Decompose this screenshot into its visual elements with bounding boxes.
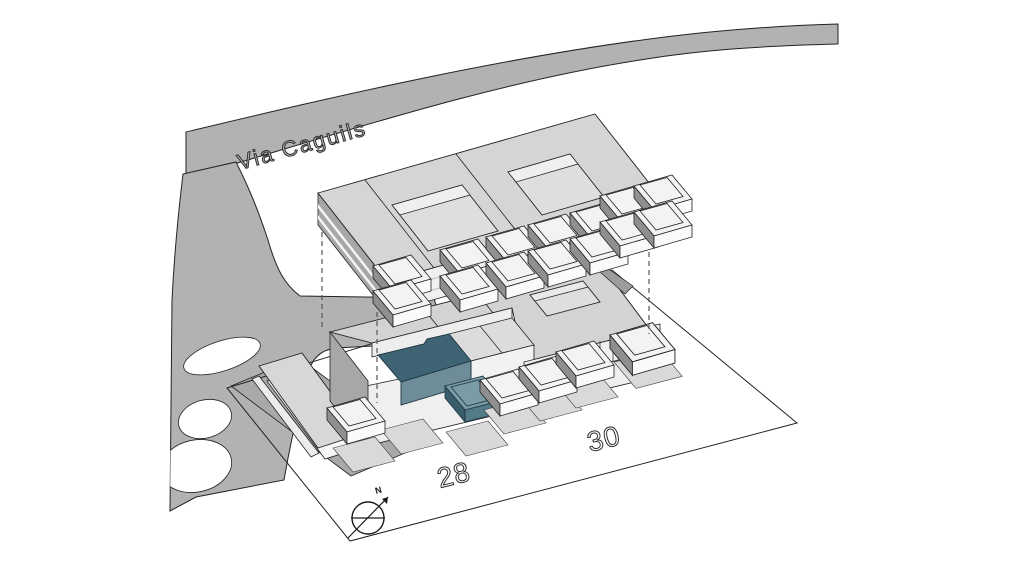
compass-north-label: N [374,485,383,496]
house-number-28: 28 [434,456,474,494]
house-number-30: 30 [584,420,624,458]
upper-floor-plate [318,114,692,327]
site-plan-svg: Via Caguils [0,0,1025,588]
compass-icon: N [348,485,388,538]
svg-text:28: 28 [434,456,474,494]
site-plan-canvas: Via Caguils [0,0,1025,588]
svg-text:30: 30 [584,420,624,458]
